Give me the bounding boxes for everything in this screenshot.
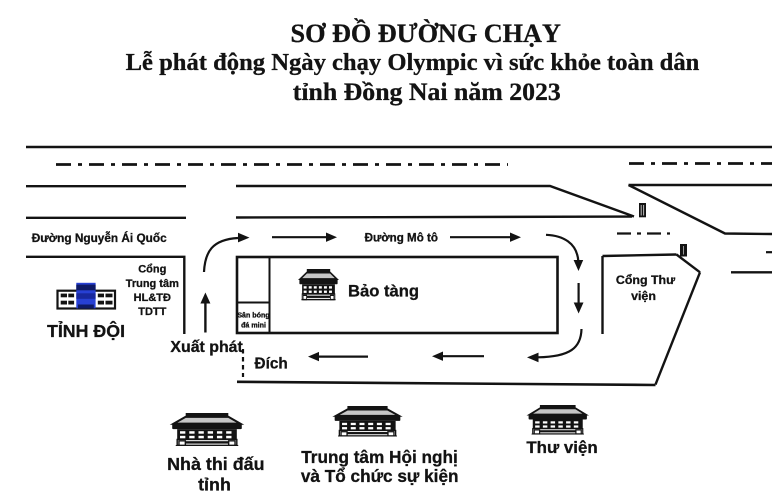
- svg-text:Trung tâm Hội nghị: Trung tâm Hội nghị: [301, 447, 458, 467]
- svg-text:Lễ phát động Ngày chạy Olympic: Lễ phát động Ngày chạy Olympic vì sức kh…: [126, 49, 700, 76]
- svg-text:đá mini: đá mini: [241, 322, 266, 330]
- svg-text:TDTT: TDTT: [138, 306, 166, 318]
- svg-text:Đường Mô tô: Đường Mô tô: [365, 232, 438, 245]
- svg-text:Cổng Thư: Cổng Thư: [616, 273, 675, 287]
- svg-text:và Tổ chức sự kiện: và Tổ chức sự kiện: [301, 466, 459, 486]
- svg-text:TỈNH ĐỘI: TỈNH ĐỘI: [47, 320, 125, 341]
- svg-text:tỉnh Đồng Nai năm 2023: tỉnh Đồng Nai năm 2023: [293, 77, 561, 106]
- svg-text:Bảo tàng: Bảo tàng: [348, 282, 419, 301]
- svg-text:SƠ ĐỒ ĐƯỜNG CHẠY: SƠ ĐỒ ĐƯỜNG CHẠY: [291, 19, 561, 48]
- svg-text:Sân bóng: Sân bóng: [237, 312, 269, 320]
- svg-text:HL&TĐ: HL&TĐ: [134, 292, 171, 304]
- svg-text:viện: viện: [631, 289, 656, 303]
- svg-text:Cổng: Cổng: [138, 264, 166, 276]
- svg-text:Đường Nguyễn Ái Quốc: Đường Nguyễn Ái Quốc: [32, 231, 167, 245]
- svg-text:Trung tâm: Trung tâm: [126, 278, 179, 290]
- svg-text:Nhà thi đấu: Nhà thi đấu: [167, 454, 264, 474]
- svg-text:Thư viện: Thư viện: [526, 438, 597, 457]
- svg-text:Đích: Đích: [255, 356, 288, 373]
- svg-text:Xuất phát: Xuất phát: [170, 339, 243, 356]
- svg-text:tỉnh: tỉnh: [198, 474, 231, 494]
